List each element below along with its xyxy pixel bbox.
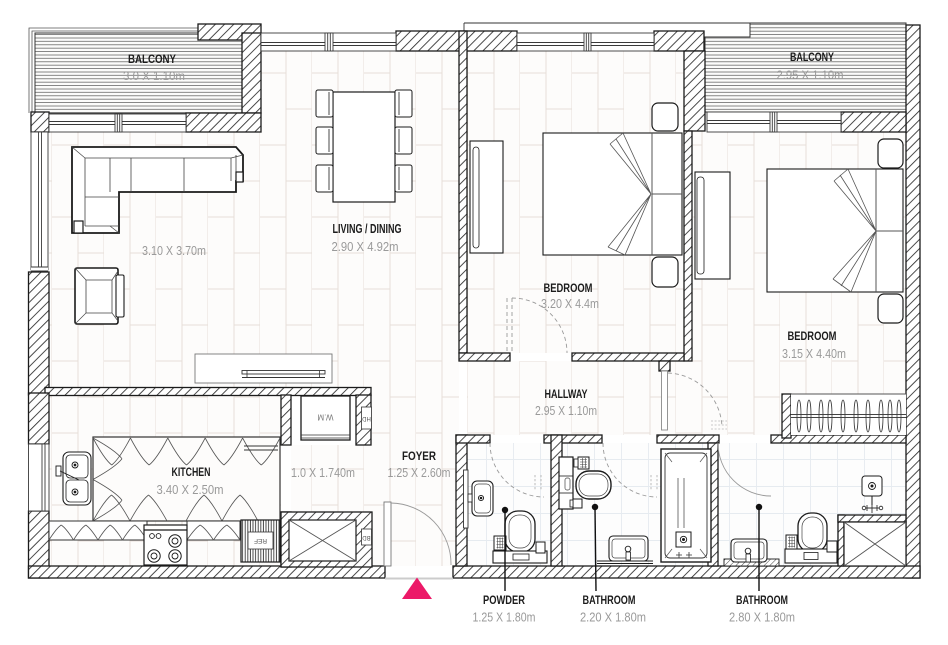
svg-text:2.20 X 1.80m: 2.20 X 1.80m: [580, 611, 646, 625]
svg-text:REF: REF: [254, 537, 267, 544]
svg-text:BEDROOM: BEDROOM: [788, 329, 837, 343]
svg-text:FOYER: FOYER: [402, 449, 436, 463]
svg-text:1.0 X 1.740m: 1.0 X 1.740m: [291, 466, 355, 480]
svg-text:BATHROOM: BATHROOM: [736, 593, 788, 607]
svg-text:BALCONY: BALCONY: [128, 54, 176, 66]
svg-text:3.15 X 4.40m: 3.15 X 4.40m: [782, 347, 846, 361]
svg-text:1.25 X 1.80m: 1.25 X 1.80m: [473, 611, 536, 625]
svg-text:LIVING / DINING: LIVING / DINING: [333, 222, 402, 236]
svg-text:BALCONY: BALCONY: [790, 52, 834, 64]
svg-text:2.80 X 1.80m: 2.80 X 1.80m: [729, 611, 795, 625]
svg-text:W.M: W.M: [317, 413, 333, 422]
svg-text:2.95 X 1.10m: 2.95 X 1.10m: [535, 404, 597, 418]
svg-text:1.25 X 2.60m: 1.25 X 2.60m: [388, 466, 451, 480]
svg-text:KITCHEN: KITCHEN: [172, 465, 211, 479]
svg-text:BD: BD: [362, 534, 371, 540]
svg-text:3.20 X 4.4m: 3.20 X 4.4m: [541, 297, 599, 311]
svg-text:3.10 X 3.70m: 3.10 X 3.70m: [142, 244, 206, 258]
svg-text:BATHROOM: BATHROOM: [583, 593, 636, 607]
svg-text:3.40 X 2.50m: 3.40 X 2.50m: [157, 483, 224, 497]
svg-text:2.90 X 4.92m: 2.90 X 4.92m: [332, 240, 399, 254]
svg-text:POWDER: POWDER: [483, 593, 525, 607]
svg-text:HD: HD: [362, 415, 371, 421]
svg-text:3.0 X 1.10m: 3.0 X 1.10m: [123, 69, 185, 83]
svg-text:BEDROOM: BEDROOM: [544, 281, 593, 295]
svg-text:2.95 X 1.10m: 2.95 X 1.10m: [777, 68, 844, 82]
svg-text:HALLWAY: HALLWAY: [545, 387, 588, 401]
